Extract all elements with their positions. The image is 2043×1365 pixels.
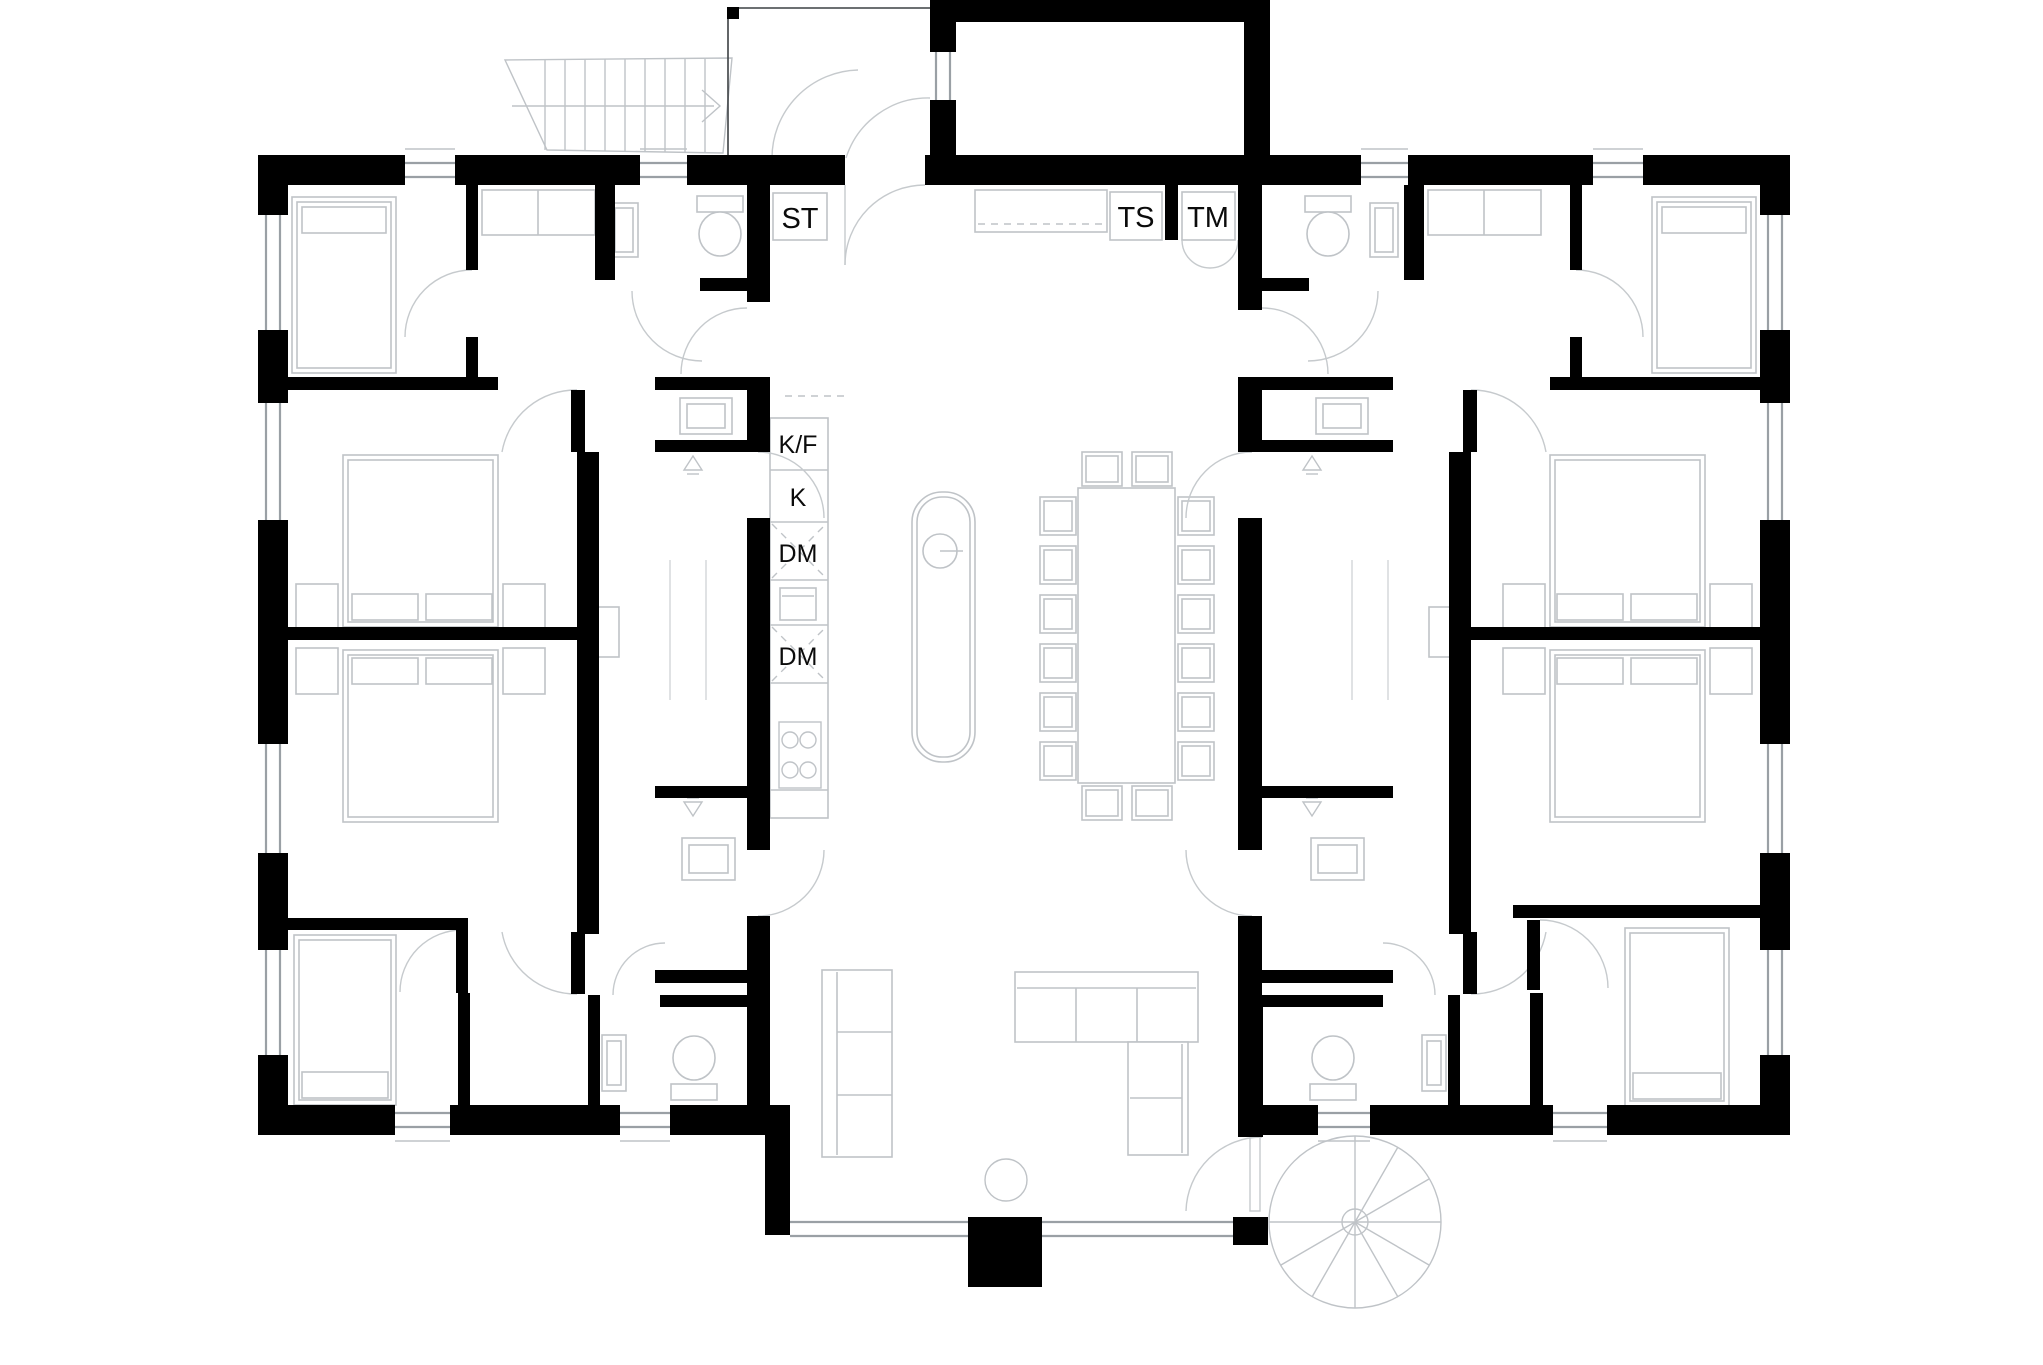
washbasin-bottom-right [1422, 1035, 1446, 1091]
label-washing-machine: TM [1187, 202, 1229, 234]
dining-table [1078, 488, 1175, 783]
floor-plan-svg: ST TS TM K/F K DM DM [0, 0, 2043, 1365]
oven [780, 588, 816, 620]
double-bed-left-upper [296, 455, 545, 630]
washbasin-right-upper [1316, 398, 1368, 434]
washbasin-bottom-left [602, 1035, 626, 1091]
washbasin-left-upper [680, 398, 732, 434]
double-bed-right-upper [1503, 455, 1752, 630]
label-drying-cabinet: TS [1117, 202, 1154, 234]
bed-top-left [292, 197, 396, 373]
sofa [822, 970, 892, 1157]
toilet-bottom-right [1310, 1036, 1356, 1100]
wardrobe-top-right [1428, 190, 1541, 235]
corner-sofa [1015, 972, 1198, 1155]
shower-panel-right [1370, 203, 1398, 257]
double-bed-left-lower [296, 648, 545, 822]
kitchen-island [912, 492, 975, 762]
washbasin-right-lower [1311, 838, 1364, 880]
label-fridge-freezer: K/F [779, 431, 818, 459]
label-cleaning-closet: ST [781, 203, 818, 235]
toilet-top-left [697, 196, 743, 256]
wardrobe-top-left [482, 190, 595, 235]
bed-bottom-left [294, 935, 396, 1105]
floor-plan-page: ST TS TM K/F K DM DM [0, 0, 2043, 1365]
toilet-top-right [1305, 196, 1351, 256]
laundry-counter [975, 190, 1107, 232]
double-bed-right-lower [1503, 648, 1752, 822]
bed-top-right [1652, 197, 1756, 373]
spiral-staircase [1269, 1136, 1441, 1308]
label-dishwasher-lower: DM [779, 643, 818, 671]
label-fridge: K [790, 484, 807, 512]
coffee-table [985, 1159, 1027, 1201]
bed-bottom-right [1625, 928, 1729, 1106]
label-dishwasher-upper: DM [779, 540, 818, 568]
door-leaves [456, 390, 1540, 994]
vestibule-walls [728, 8, 930, 158]
external-staircase [505, 58, 732, 153]
washbasin-left-lower [682, 838, 735, 880]
toilet-bottom-left [671, 1036, 717, 1100]
